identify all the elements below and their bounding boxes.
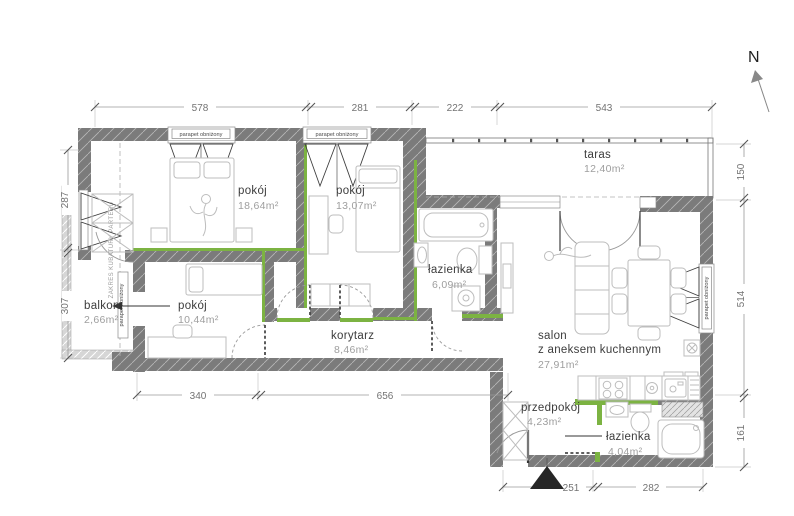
door-balcony-arrow xyxy=(112,302,170,310)
bath1-area: 6,09m² xyxy=(432,279,467,291)
dim-right-161: 161 xyxy=(736,424,747,441)
corridor-name: korytarz xyxy=(331,330,374,342)
dim-left-287: 287 xyxy=(60,191,71,208)
dim-top: 578 281 222 543 xyxy=(91,101,716,114)
dim-top-543: 543 xyxy=(596,103,613,114)
balkon-name: balkon xyxy=(84,300,120,312)
dim-inner-656: 656 xyxy=(377,391,394,402)
room3-name: pokój xyxy=(178,300,207,312)
north-arrow: N xyxy=(748,49,769,112)
dim-bottom-251: 251 xyxy=(563,483,580,494)
hall-name: przedpokój xyxy=(521,402,580,414)
terrace-railing xyxy=(426,138,713,198)
salon-furniture xyxy=(501,242,700,394)
bath2-name: łazienka xyxy=(606,431,651,443)
dim-inner: 340 656 xyxy=(133,389,512,402)
dim-bottom-282: 282 xyxy=(643,483,660,494)
dim-bottom: 251 282 xyxy=(499,481,707,494)
boiler-icon xyxy=(684,340,700,356)
dim-top-281: 281 xyxy=(352,103,369,114)
room2-area: 13,07m² xyxy=(336,200,377,212)
room1-area: 18,64m² xyxy=(238,200,279,212)
door-room3 xyxy=(232,325,265,358)
taras-area: 12,40m² xyxy=(584,163,625,175)
dim-top-578: 578 xyxy=(192,103,209,114)
window-label: parapet obniżony xyxy=(316,132,359,138)
kitchen-counter xyxy=(578,376,700,400)
floor-plan: ZAKRES KUBATURY PARTERU parapet obniżony xyxy=(0,0,794,516)
corridor-area: 8,46m² xyxy=(334,344,369,356)
bath2-area: 4,04m² xyxy=(608,446,643,458)
boundary-label: ZAKRES KUBATURY PARTERU xyxy=(109,202,115,299)
dim-top-222: 222 xyxy=(447,103,464,114)
bed-room1 xyxy=(151,158,252,242)
dim-right-150: 150 xyxy=(736,163,747,180)
floor-plan-canvas: ZAKRES KUBATURY PARTERU parapet obniżony xyxy=(0,0,794,516)
door-room2 xyxy=(340,285,373,318)
room2-name: pokój xyxy=(336,185,365,197)
window-label: parapet obniżony xyxy=(704,276,710,319)
dim-inner-340: 340 xyxy=(190,391,207,402)
balkon-area: 2,66m² xyxy=(84,314,119,326)
dim-left-307: 307 xyxy=(60,297,71,314)
north-arrowhead-icon xyxy=(751,70,763,83)
salon-name-line2: z aneksem kuchennym xyxy=(538,344,661,356)
taras-name: taras xyxy=(584,149,611,161)
bath1-name: łazienka xyxy=(428,264,473,276)
door-bath1 xyxy=(432,321,462,351)
window-terrace-band xyxy=(500,196,656,208)
north-label: N xyxy=(748,49,760,66)
salon-area: 27,91m² xyxy=(538,359,579,371)
window-label: parapet obniżony xyxy=(180,132,223,138)
hall-area: 4,23m² xyxy=(527,416,562,428)
dim-right: 150 514 161 xyxy=(736,140,750,471)
salon-name-line1: salon xyxy=(538,330,567,342)
entrance-triangle-icon xyxy=(530,466,564,489)
bath1-fixtures xyxy=(414,209,493,311)
room3-area: 10,44m² xyxy=(178,314,219,326)
room1-name: pokój xyxy=(238,185,267,197)
dim-right-514: 514 xyxy=(736,290,747,307)
